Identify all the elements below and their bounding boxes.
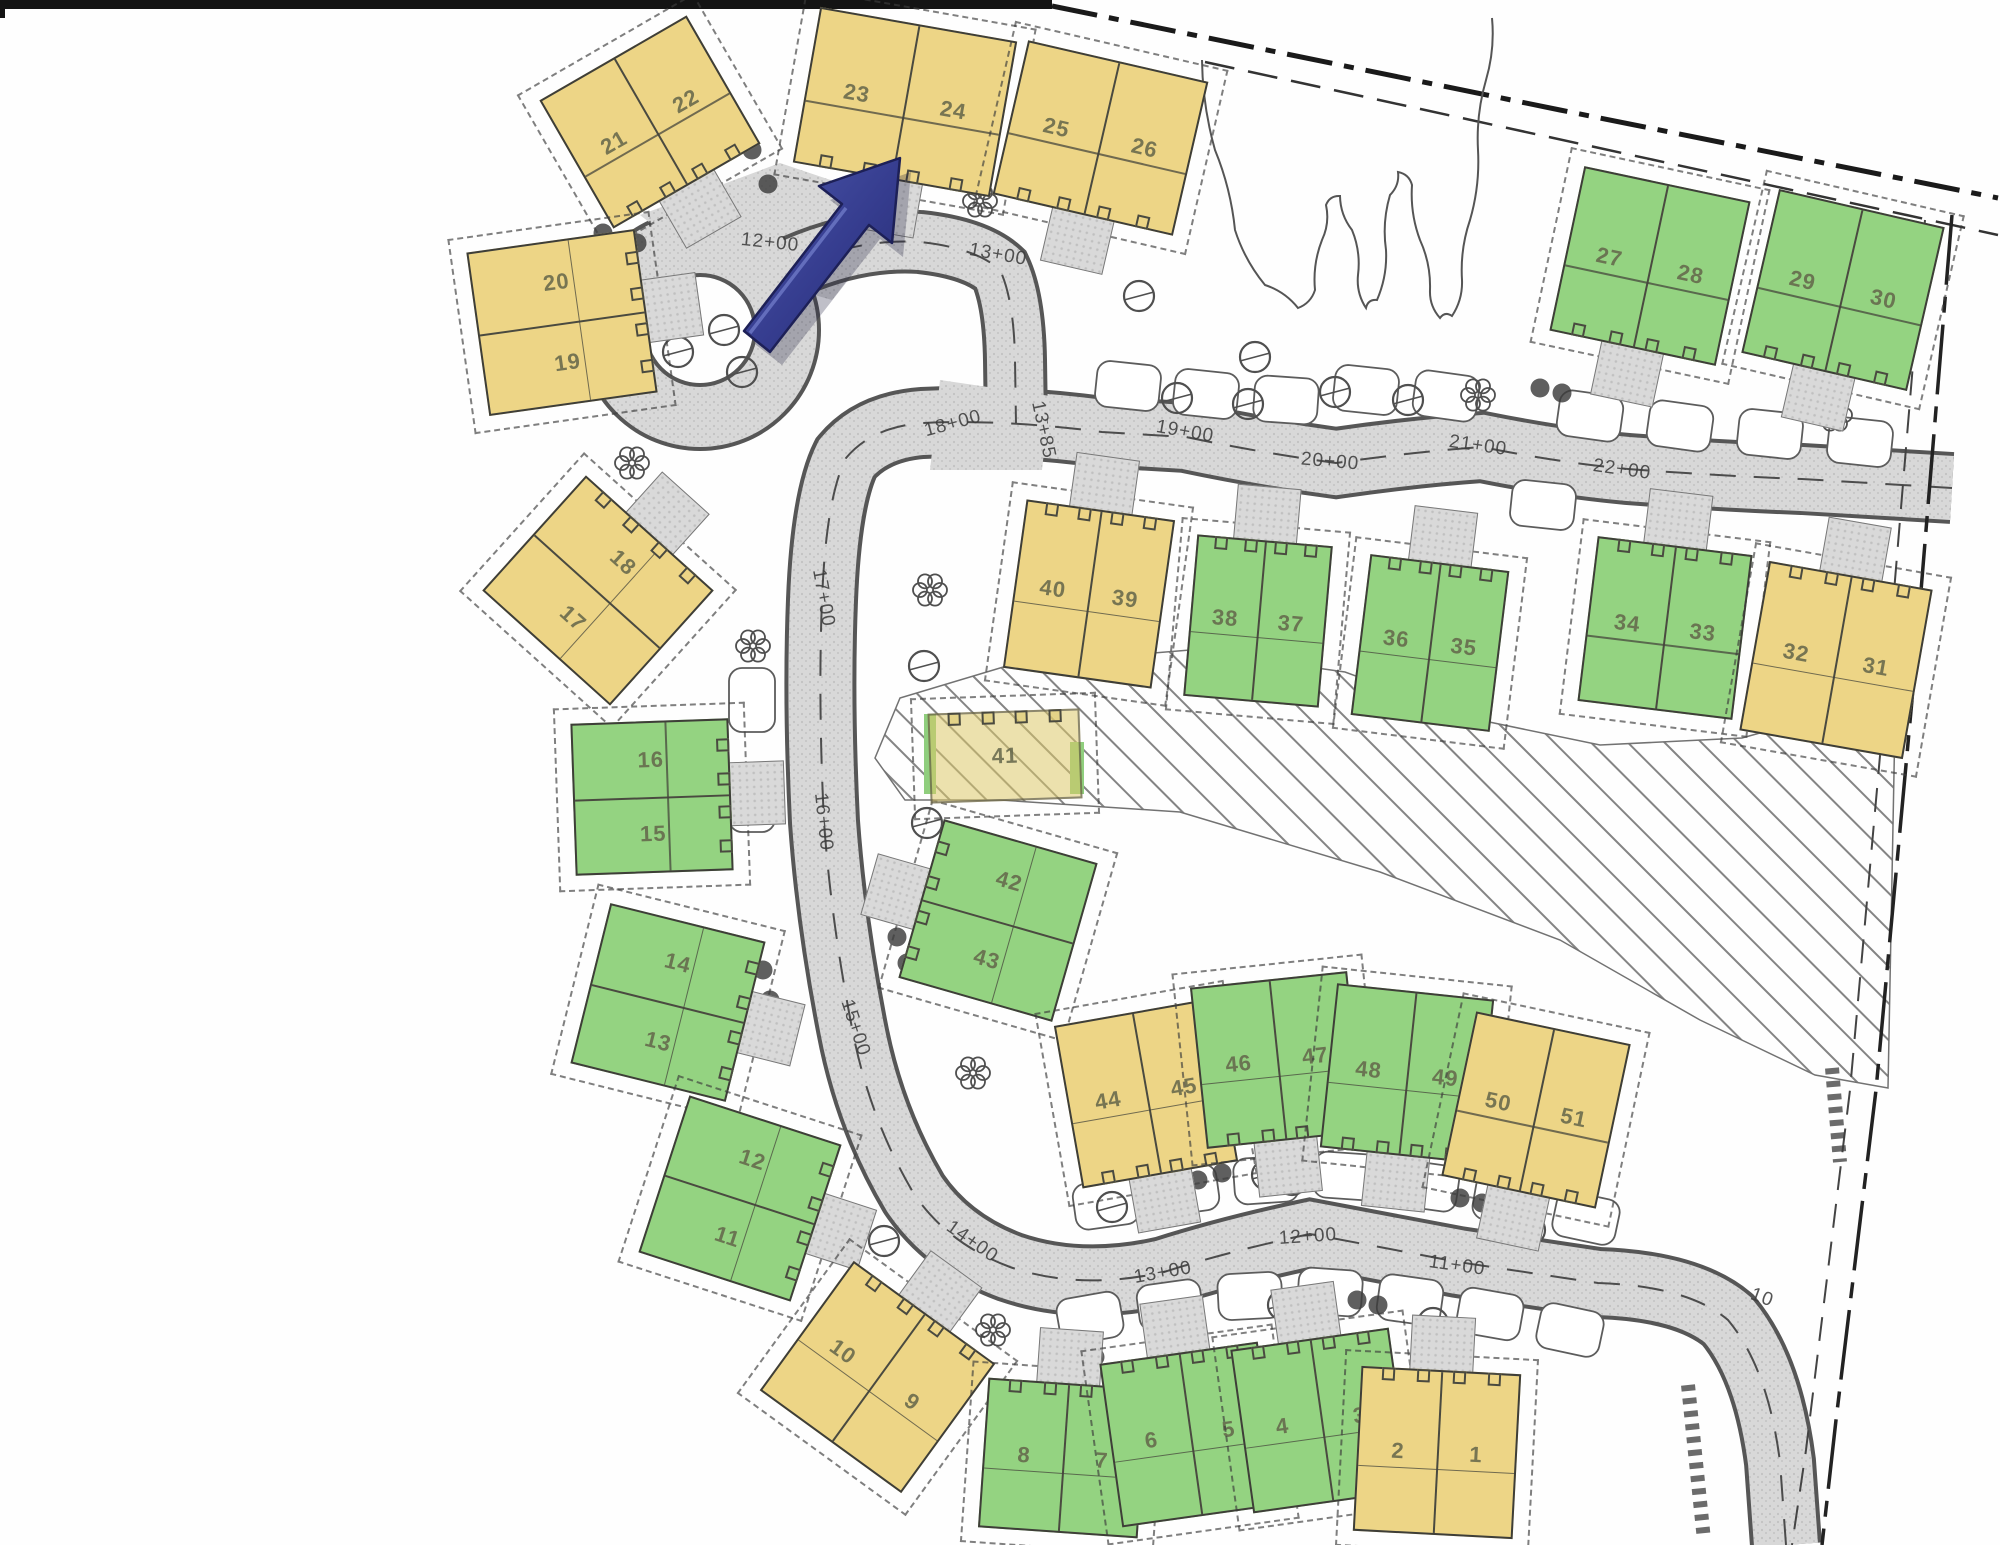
locator-arrow — [744, 158, 900, 352]
locator-arrow-layer — [0, 0, 2000, 1545]
site-plan-canvas: 2122232425262728293020191817161514134243… — [0, 0, 2000, 1545]
